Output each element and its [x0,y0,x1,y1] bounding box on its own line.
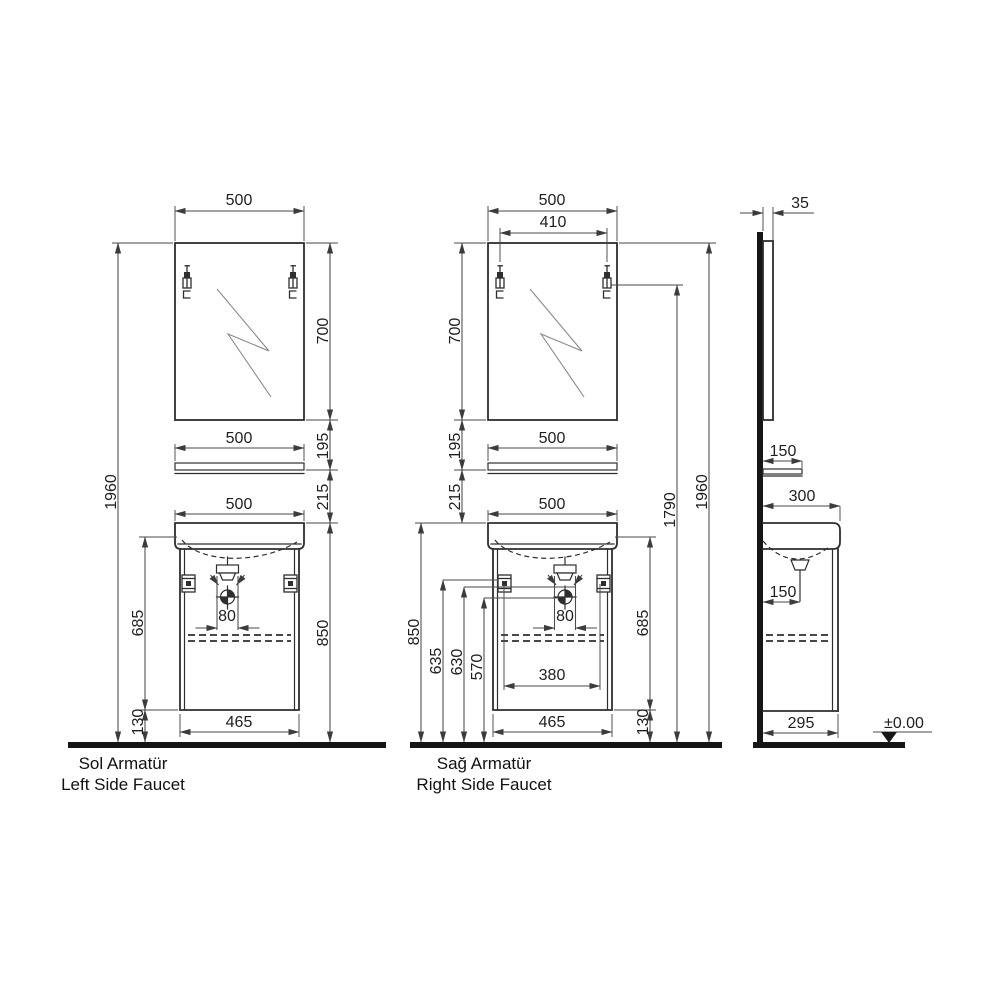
dim-mirror-width: 500 [539,192,566,209]
level-marker-icon [881,732,897,743]
side-view: 35 150 300 150 295 ±0.00 [740,195,932,748]
mounting-bracket-icon [284,575,297,592]
dim-gap-mirror-shelf: 195 [315,433,332,460]
dim-plinth-height: 130 [130,709,147,736]
dim-shelf-width: 500 [226,430,253,447]
dim-mirror-width: 500 [226,192,253,209]
dim-cabinet-height: 685 [130,610,147,637]
dim-lamp-height: 1790 [662,492,679,528]
floor-line [410,742,722,748]
shelf [488,463,617,470]
mirror [488,243,617,420]
dim-lamp-spacing: 410 [540,214,567,231]
dim-cabinet-depth: 295 [788,715,815,732]
shelf-side [763,469,802,474]
floor-line [68,742,386,748]
dim-plinth-height: 130 [635,709,652,736]
mirror-side [763,241,773,420]
dim-shelf-width: 500 [539,430,566,447]
drain-side [791,560,809,570]
dim-basin-width: 500 [226,496,253,513]
washbasin [175,523,304,549]
dim-gap-shelf-basin: 215 [315,484,332,511]
dim-cabinet-height: 685 [635,610,652,637]
caption-left-en: Left Side Faucet [61,775,185,794]
dim-drain-wall-distance: 150 [770,584,797,601]
floor-line [753,742,905,748]
dim-basin-depth: 300 [789,488,816,505]
dim-drain-height: 570 [469,654,486,681]
caption-right-en: Right Side Faucet [416,775,551,794]
technical-drawing-page: 500 700 195 215 850 1960 500 [0,0,990,990]
mounting-bracket-icon [597,575,610,592]
dim-drain-offset: 80 [556,608,574,625]
cabinet [180,549,299,710]
dim-basin-width: 500 [539,496,566,513]
dim-mirror-height: 700 [315,318,332,345]
caption-right-tr: Sağ Armatür [437,754,532,773]
dim-cabinet-width: 465 [539,714,566,731]
dim-bracket-height: 635 [428,648,445,675]
dim-mirror-height: 700 [447,318,464,345]
wall [757,232,763,748]
mounting-bracket-icon [182,575,195,592]
dim-cabinet-width: 465 [226,714,253,731]
dim-basin-height: 850 [406,619,423,646]
right-faucet-view: 500 410 700 195 215 500 500 [406,192,722,794]
dim-mirror-depth: 35 [791,195,809,212]
shelf [175,463,304,470]
dim-gap-shelf-basin: 215 [447,484,464,511]
dim-bracket-spacing: 380 [539,667,566,684]
mounting-bracket-icon [498,575,511,592]
dim-shelf-depth: 150 [770,443,797,460]
caption-left-tr: Sol Armatür [79,754,168,773]
dim-gap-mirror-shelf: 195 [447,433,464,460]
dim-overall-height: 1960 [103,474,120,510]
dim-drain-offset: 80 [218,608,236,625]
dim-faucet-height: 630 [449,649,466,676]
vanity-technical-drawing: 500 700 195 215 850 1960 500 [0,0,990,990]
washbasin [488,523,617,549]
mirror [175,243,304,420]
left-faucet-view: 500 700 195 215 850 1960 500 [61,192,386,794]
dim-basin-height: 850 [315,620,332,647]
dim-overall-height: 1960 [694,474,711,510]
washbasin-side [763,523,840,549]
floor-level-label: ±0.00 [884,715,924,732]
